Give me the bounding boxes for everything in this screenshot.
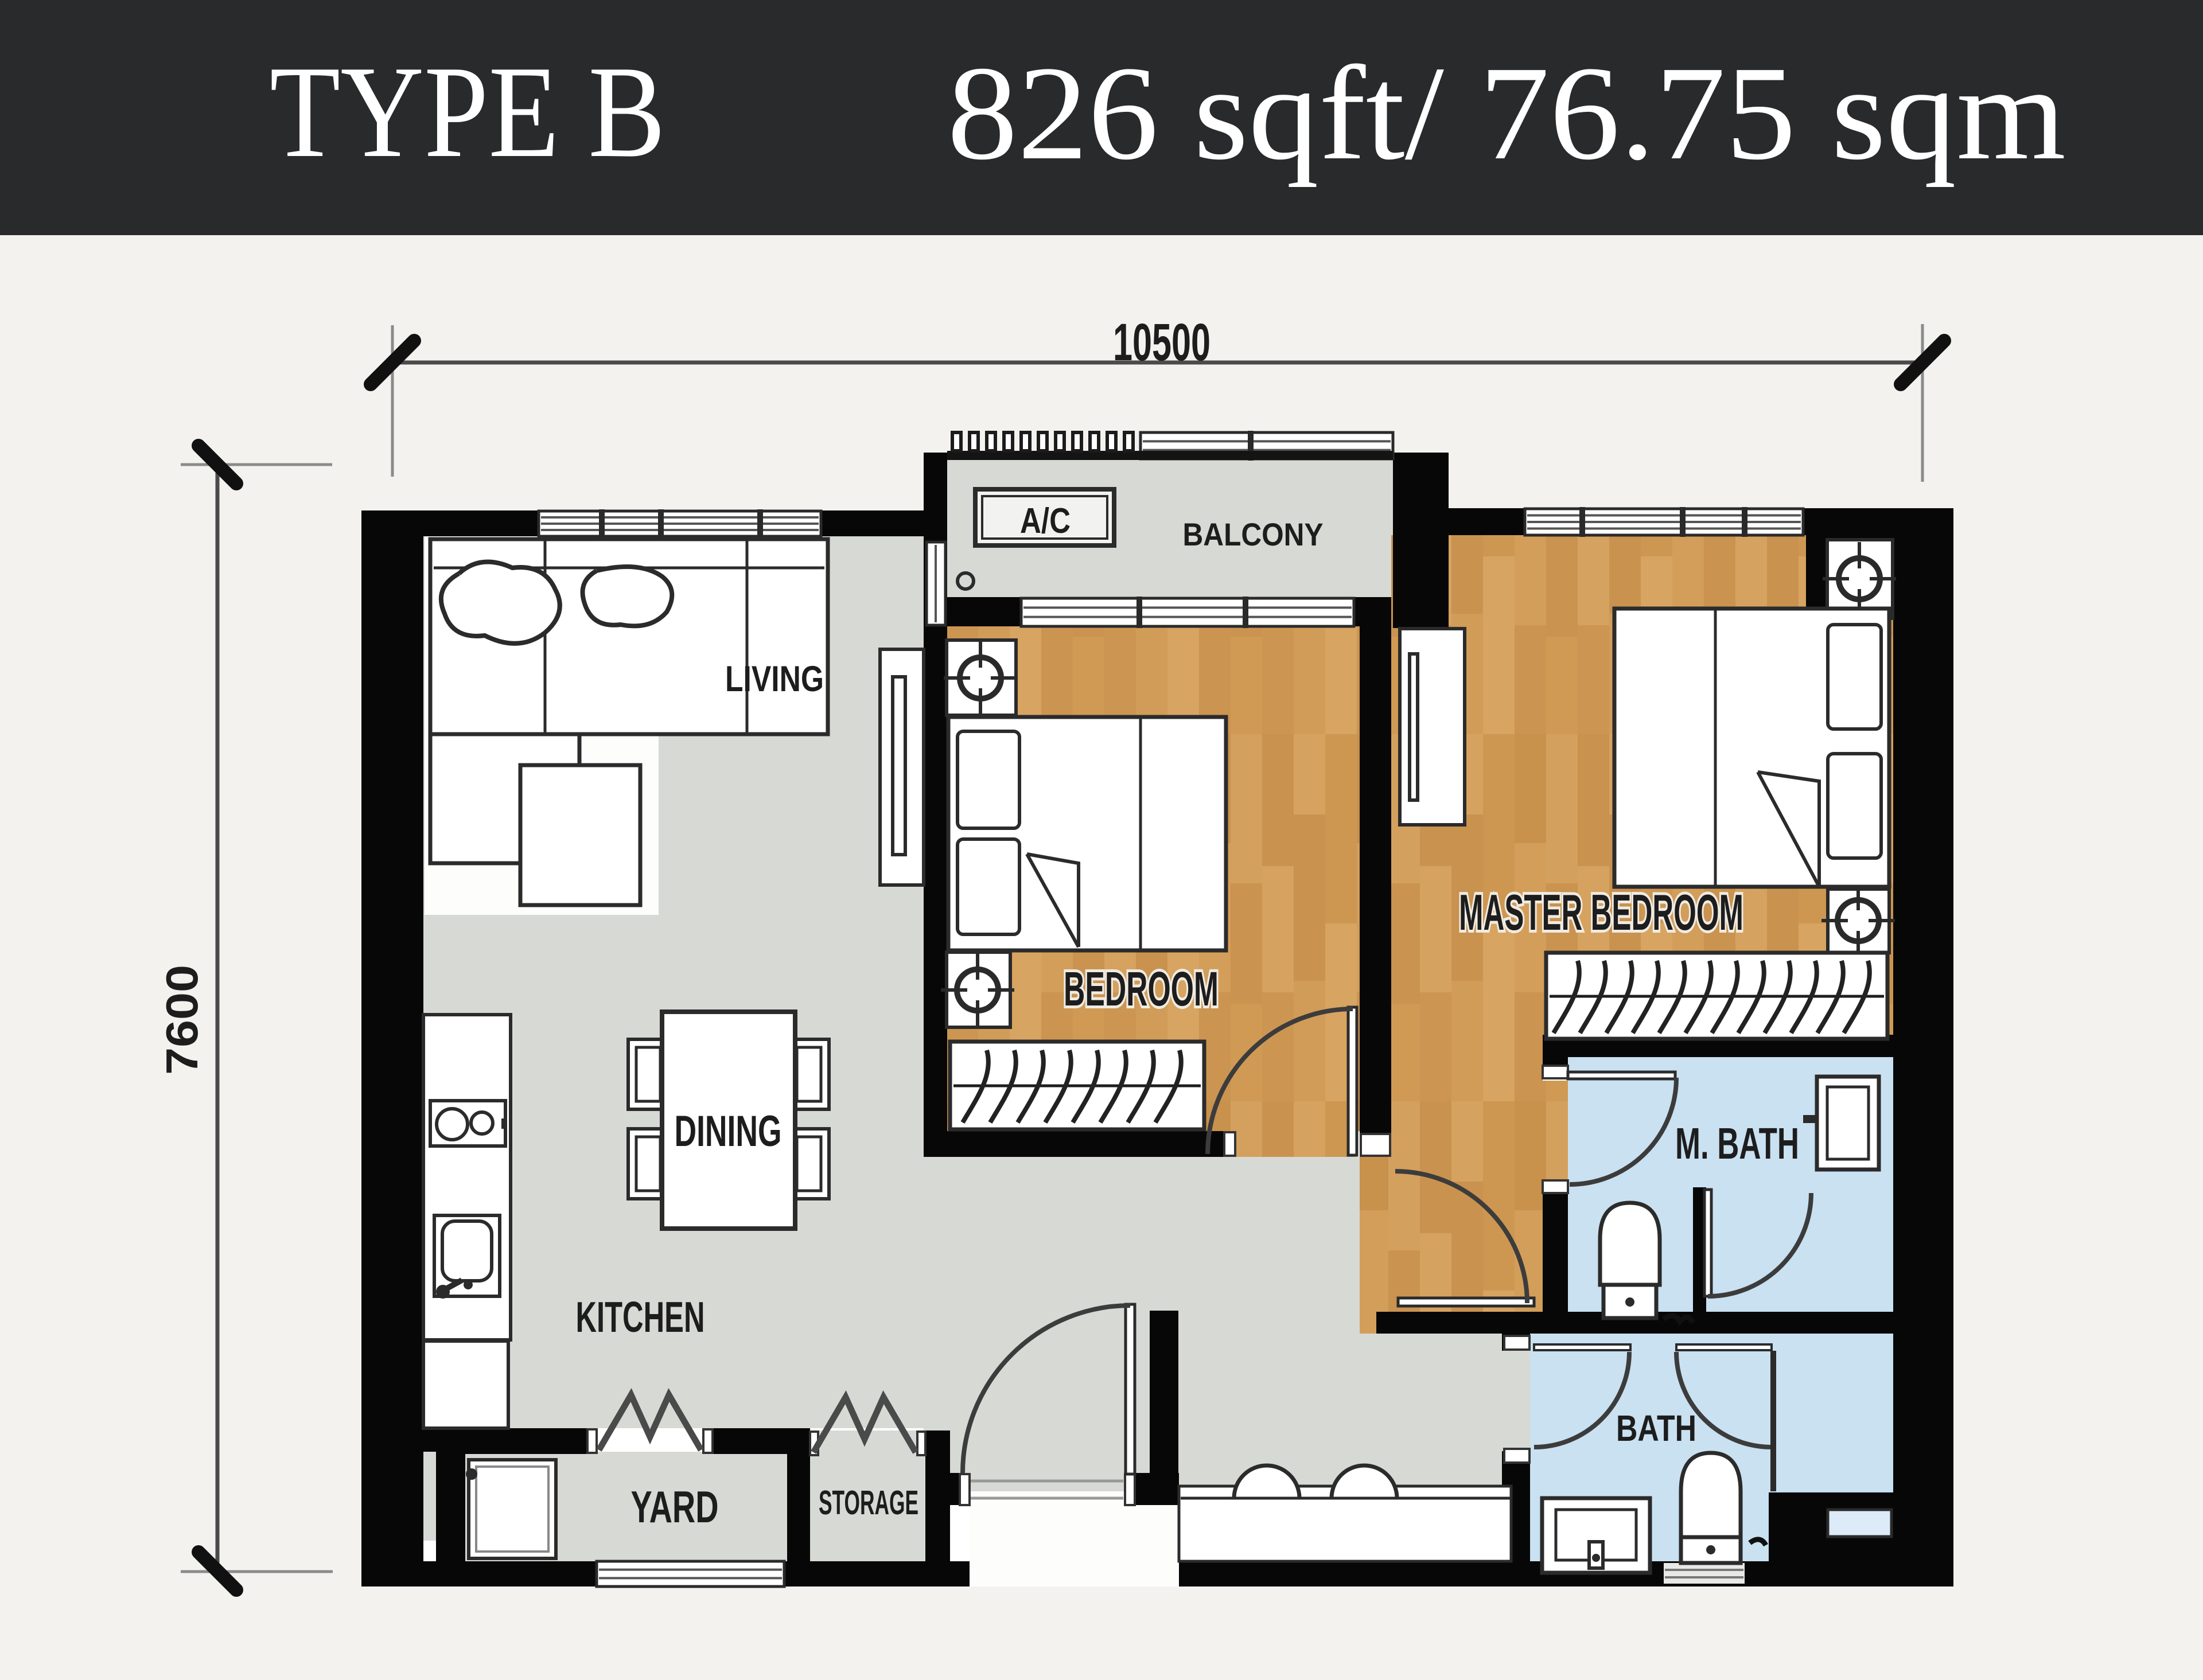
- svg-text:826 sqft/ 76.75 sqm: 826 sqft/ 76.75 sqm: [947, 38, 2066, 188]
- svg-text:BEDROOM: BEDROOM: [1064, 962, 1219, 1016]
- svg-text:7600: 7600: [157, 965, 207, 1075]
- svg-text:10500: 10500: [1113, 313, 1211, 372]
- svg-text:STORAGE: STORAGE: [819, 1484, 918, 1522]
- svg-text:KITCHEN: KITCHEN: [576, 1293, 705, 1341]
- svg-text:A/C: A/C: [1020, 501, 1071, 541]
- svg-text:LIVING: LIVING: [725, 659, 824, 699]
- svg-text:DINING: DINING: [675, 1107, 782, 1156]
- svg-text:MASTER BEDROOM: MASTER BEDROOM: [1459, 884, 1743, 941]
- svg-text:M. BATH: M. BATH: [1675, 1119, 1799, 1168]
- svg-text:BATH: BATH: [1616, 1408, 1696, 1449]
- svg-text:TYPE B: TYPE B: [270, 38, 665, 185]
- svg-text:YARD: YARD: [631, 1482, 719, 1532]
- svg-text:BALCONY: BALCONY: [1183, 516, 1324, 552]
